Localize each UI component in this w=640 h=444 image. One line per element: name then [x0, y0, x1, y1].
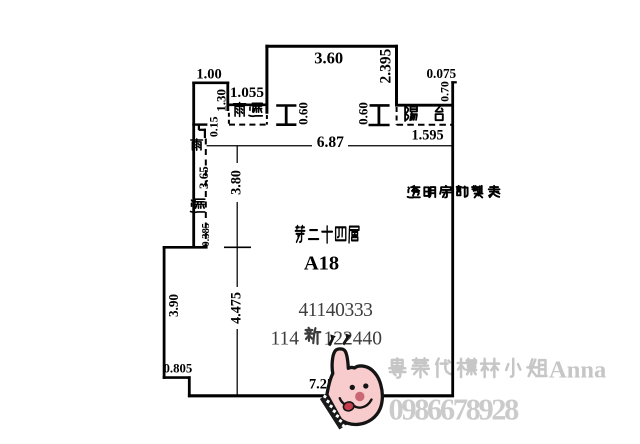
- svg-text:6.87: 6.87: [317, 134, 344, 151]
- svg-text:2.395: 2.395: [378, 48, 395, 83]
- svg-text:1.00: 1.00: [196, 66, 221, 82]
- svg-text:0.60: 0.60: [356, 102, 371, 125]
- svg-text:3.80: 3.80: [229, 170, 245, 195]
- svg-text:4.475: 4.475: [228, 292, 244, 324]
- svg-text:1.595: 1.595: [412, 128, 444, 144]
- svg-text:114: 114: [271, 328, 300, 349]
- svg-text:0.15: 0.15: [207, 116, 221, 137]
- svg-text:3.65: 3.65: [196, 166, 211, 189]
- svg-text:A18: A18: [304, 252, 339, 274]
- svg-text:0.60: 0.60: [295, 102, 310, 125]
- svg-text:0.805: 0.805: [164, 361, 193, 375]
- svg-text:0.385: 0.385: [201, 223, 212, 247]
- svg-text:1.055: 1.055: [230, 84, 265, 101]
- svg-text:1.30: 1.30: [214, 89, 229, 112]
- svg-text:3.90: 3.90: [166, 294, 181, 317]
- svg-text:0.075: 0.075: [426, 66, 456, 81]
- svg-text:41140333: 41140333: [298, 300, 372, 321]
- svg-text:3.60: 3.60: [314, 49, 343, 68]
- svg-text:0.70: 0.70: [438, 81, 452, 102]
- svg-text:0986678928: 0986678928: [389, 393, 520, 427]
- svg-text:Anna: Anna: [549, 357, 606, 384]
